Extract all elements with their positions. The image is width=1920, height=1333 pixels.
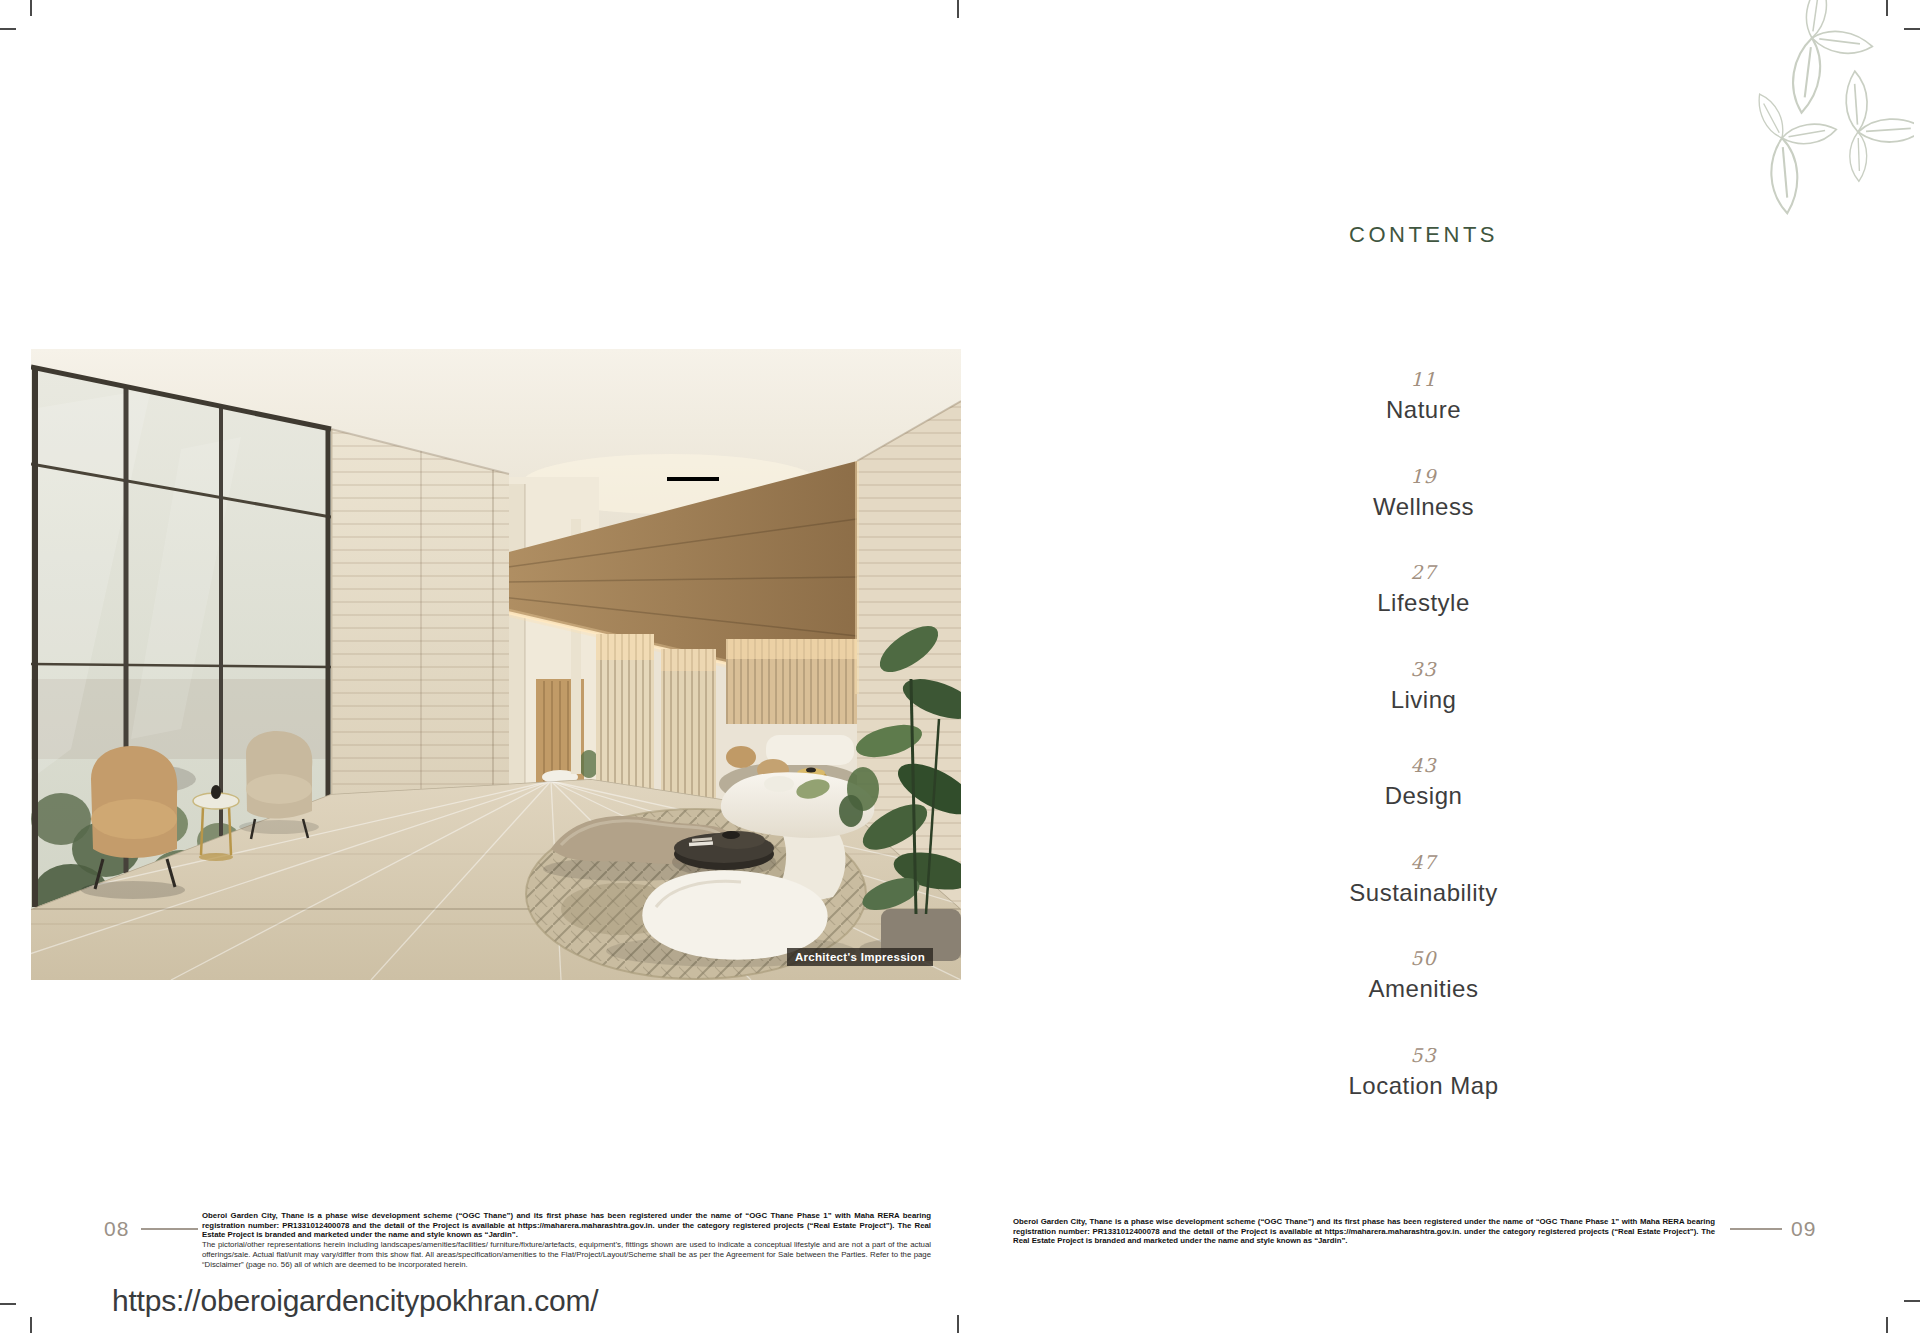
toc-entry-location-map[interactable]: 53 Location Map: [959, 1042, 1888, 1139]
disclaimer-right-bold: Oberoi Garden City, Thane is a phase wis…: [1013, 1217, 1715, 1246]
contents-page: CONTENTS 11 Nature 19 Wellness 27 Lifest…: [959, 0, 1888, 1333]
disclaimer-left: Oberoi Garden City, Thane is a phase wis…: [202, 1211, 931, 1269]
toc-label: Living: [959, 682, 1888, 718]
disclaimer-left-regular: The pictorial/other representations here…: [202, 1240, 931, 1269]
toc-label: Design: [959, 778, 1888, 814]
disclaimer-left-bold: Oberoi Garden City, Thane is a phase wis…: [202, 1211, 931, 1240]
toc-page-number: 19: [959, 463, 1888, 489]
crop-mark: [0, 1303, 16, 1305]
page-number-left: 08: [104, 1217, 129, 1241]
brochure-spread: Architect's Impression 08 Oberoi Garden …: [0, 0, 1920, 1333]
contents-heading: CONTENTS: [959, 222, 1888, 248]
toc-entry-wellness[interactable]: 19 Wellness: [959, 463, 1888, 560]
crop-mark: [1904, 1300, 1920, 1302]
crop-mark: [30, 0, 32, 16]
toc-page-number: 43: [959, 752, 1888, 778]
toc-entry-design[interactable]: 43 Design: [959, 752, 1888, 849]
footer-rule-right: [1730, 1228, 1782, 1230]
page-number-right: 09: [1791, 1217, 1816, 1241]
crop-mark: [30, 1317, 32, 1333]
disclaimer-right: Oberoi Garden City, Thane is a phase wis…: [1013, 1217, 1715, 1246]
toc-entry-amenities[interactable]: 50 Amenities: [959, 945, 1888, 1042]
toc-label: Amenities: [959, 971, 1888, 1007]
toc-entry-nature[interactable]: 11 Nature: [959, 366, 1888, 463]
table-of-contents: 11 Nature 19 Wellness 27 Lifestyle 33 Li…: [959, 366, 1888, 1138]
crop-mark: [0, 28, 16, 30]
toc-page-number: 50: [959, 945, 1888, 971]
toc-label: Wellness: [959, 489, 1888, 525]
footer-url-link[interactable]: https://oberoigardencitypokhran.com/: [112, 1284, 598, 1318]
toc-page-number: 47: [959, 849, 1888, 875]
toc-label: Lifestyle: [959, 585, 1888, 621]
toc-entry-lifestyle[interactable]: 27 Lifestyle: [959, 559, 1888, 656]
toc-label: Nature: [959, 392, 1888, 428]
toc-entry-living[interactable]: 33 Living: [959, 656, 1888, 753]
toc-page-number: 33: [959, 656, 1888, 682]
lobby-render-image: Architect's Impression: [31, 349, 961, 980]
toc-label: Location Map: [959, 1068, 1888, 1104]
footer-rule-left: [141, 1228, 198, 1230]
toc-entry-sustainability[interactable]: 47 Sustainability: [959, 849, 1888, 946]
lobby-render: [31, 349, 961, 980]
architects-impression-label: Architect's Impression: [787, 948, 933, 966]
toc-label: Sustainability: [959, 875, 1888, 911]
toc-page-number: 11: [959, 366, 1888, 392]
toc-page-number: 53: [959, 1042, 1888, 1068]
toc-page-number: 27: [959, 559, 1888, 585]
